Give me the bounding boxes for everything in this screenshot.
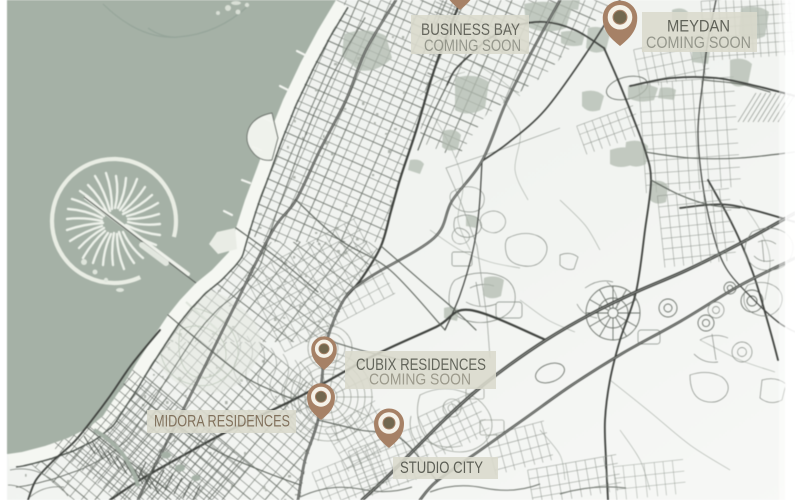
svg-text:COMING SOON: COMING SOON <box>424 37 521 55</box>
svg-text:COMING SOON: COMING SOON <box>369 372 471 389</box>
svg-text:MIDORA RESIDENCES: MIDORA RESIDENCES <box>154 413 290 431</box>
svg-text:COMING SOON: COMING SOON <box>646 34 751 52</box>
svg-text:STUDIO CITY: STUDIO CITY <box>400 459 483 477</box>
svg-text:MEYDAN: MEYDAN <box>667 17 730 36</box>
